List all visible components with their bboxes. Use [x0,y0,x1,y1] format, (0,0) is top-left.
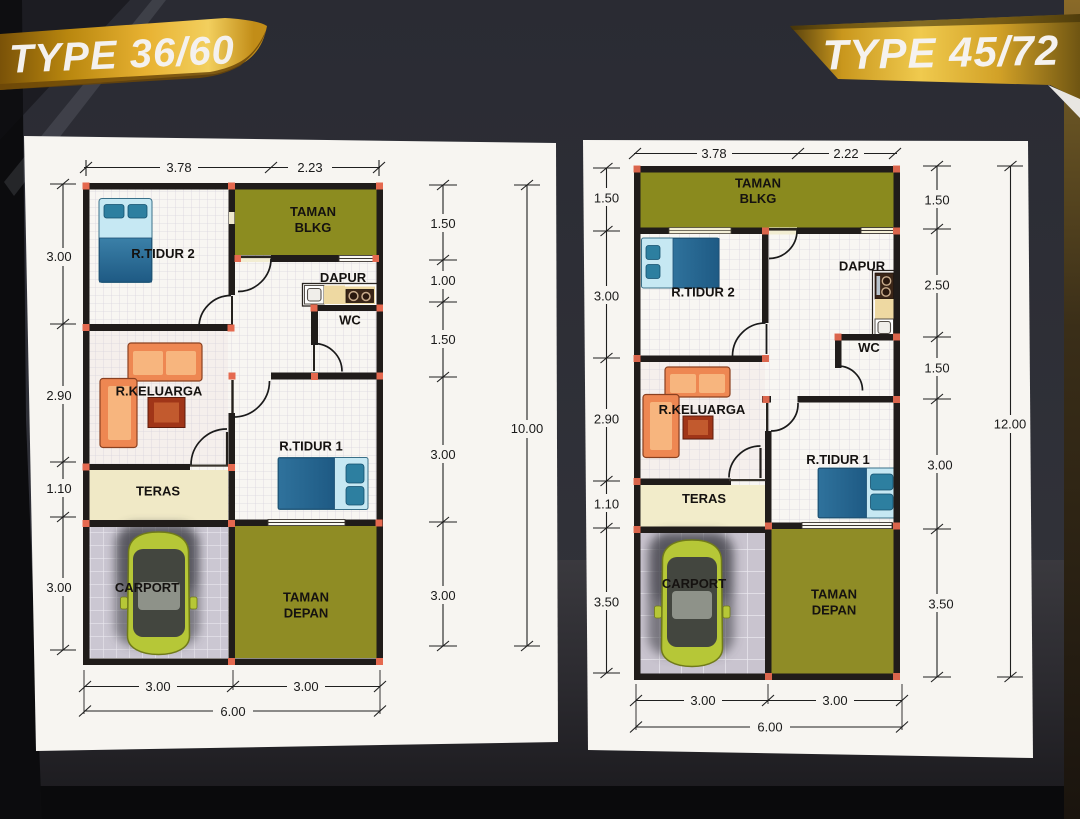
svg-text:WC: WC [858,340,880,355]
svg-text:TYPE 45/72: TYPE 45/72 [822,27,1059,79]
svg-text:TAMAN: TAMAN [735,176,781,191]
svg-text:3.00: 3.00 [594,289,619,304]
svg-text:2.22: 2.22 [833,146,858,161]
svg-text:DAPUR: DAPUR [839,259,886,274]
svg-text:R.TIDUR 2: R.TIDUR 2 [671,285,735,300]
svg-text:1.00: 1.00 [430,273,455,288]
svg-text:3.00: 3.00 [46,249,71,264]
svg-text:2.90: 2.90 [594,412,619,427]
svg-text:DEPAN: DEPAN [812,603,857,618]
svg-text:DAPUR: DAPUR [320,270,367,285]
svg-text:3.78: 3.78 [166,160,191,175]
svg-text:3.00: 3.00 [690,693,715,708]
svg-text:1.50: 1.50 [430,332,455,347]
svg-text:WC: WC [339,313,361,328]
svg-text:1.50: 1.50 [924,193,949,208]
svg-text:CARPORT: CARPORT [662,576,726,591]
svg-text:TAMAN: TAMAN [811,587,857,602]
svg-text:3.00: 3.00 [46,580,71,595]
svg-text:TAMAN: TAMAN [290,204,336,219]
svg-text:R.KELUARGA: R.KELUARGA [659,402,746,417]
svg-text:3.00: 3.00 [293,679,318,694]
svg-text:TAMAN: TAMAN [283,590,329,605]
svg-text:1.50: 1.50 [430,216,455,231]
svg-text:1.10: 1.10 [594,497,619,512]
svg-text:1.10: 1.10 [46,481,71,496]
svg-text:10.00: 10.00 [511,421,544,436]
svg-text:CARPORT: CARPORT [115,580,179,595]
svg-text:3.78: 3.78 [701,146,726,161]
svg-text:TERAS: TERAS [136,484,180,499]
svg-text:6.00: 6.00 [220,704,245,719]
svg-text:3.50: 3.50 [928,597,953,612]
svg-text:R.KELUARGA: R.KELUARGA [116,384,203,399]
svg-text:R.TIDUR 2: R.TIDUR 2 [131,246,195,261]
svg-text:3.50: 3.50 [594,595,619,610]
svg-text:BLKG: BLKG [295,220,332,235]
svg-text:3.00: 3.00 [822,693,847,708]
svg-text:3.00: 3.00 [927,458,952,473]
svg-text:3.00: 3.00 [430,588,455,603]
svg-text:12.00: 12.00 [994,417,1027,432]
svg-text:6.00: 6.00 [757,720,782,735]
svg-text:3.00: 3.00 [145,679,170,694]
svg-text:2.50: 2.50 [924,278,949,293]
svg-text:1.50: 1.50 [594,191,619,206]
svg-text:R.TIDUR 1: R.TIDUR 1 [279,439,343,454]
svg-text:TERAS: TERAS [682,491,726,506]
svg-text:R.TIDUR 1: R.TIDUR 1 [806,452,870,467]
svg-text:2.90: 2.90 [46,388,71,403]
svg-text:3.00: 3.00 [430,447,455,462]
svg-text:DEPAN: DEPAN [284,606,329,621]
svg-text:2.23: 2.23 [297,160,322,175]
svg-text:1.50: 1.50 [924,361,949,376]
svg-text:BLKG: BLKG [740,191,777,206]
